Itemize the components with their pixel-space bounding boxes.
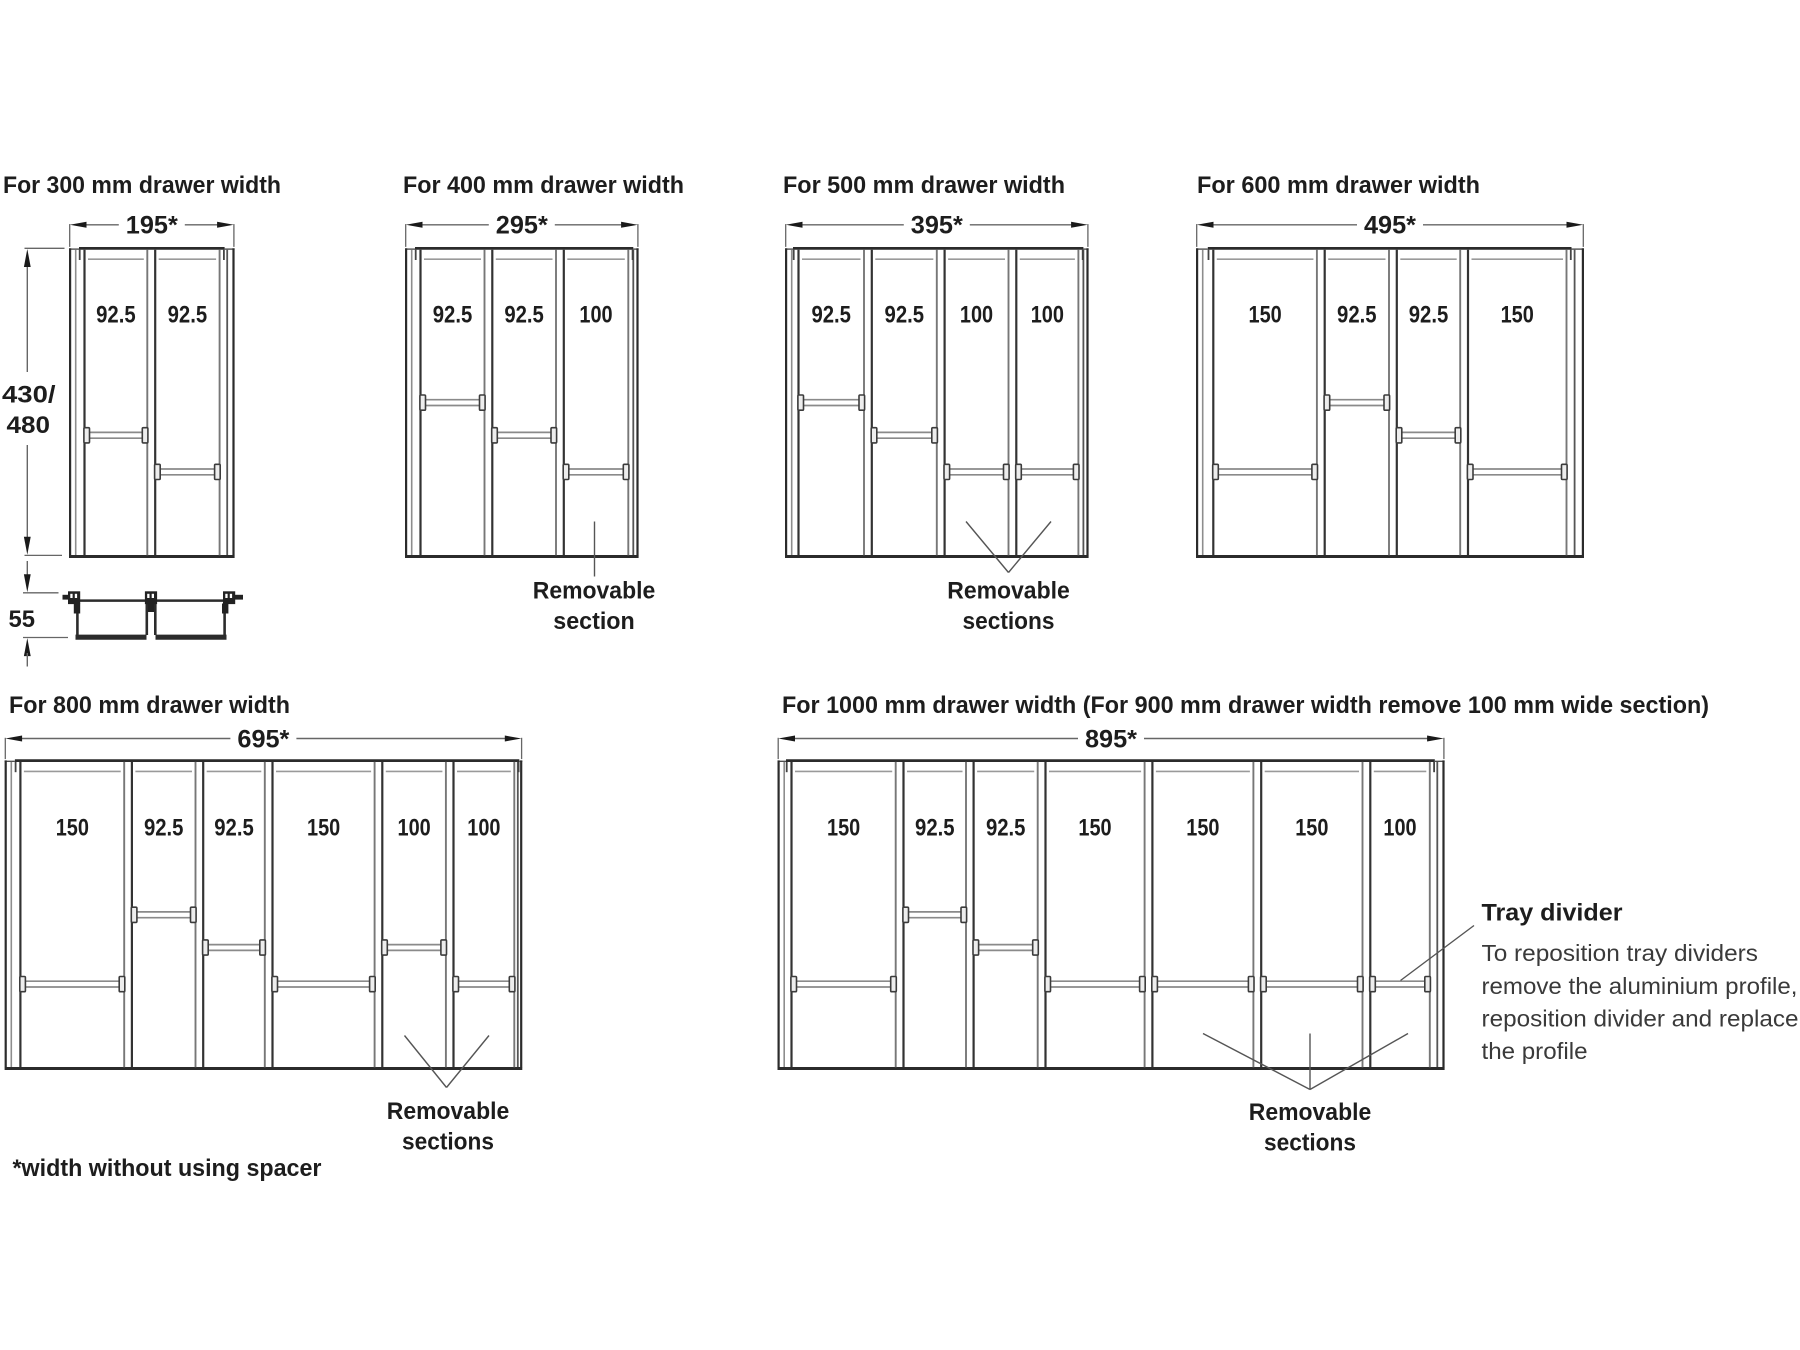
svg-text:92.5: 92.5 (1409, 302, 1449, 329)
svg-text:92.5: 92.5 (1337, 302, 1377, 329)
svg-text:100: 100 (467, 815, 500, 842)
svg-text:150: 150 (827, 815, 860, 842)
svg-text:For 300 mm drawer width: For 300 mm drawer width (3, 172, 281, 199)
svg-text:92.5: 92.5 (885, 302, 925, 329)
svg-text:Removable: Removable (947, 578, 1070, 605)
svg-text:480: 480 (7, 412, 51, 439)
svg-text:100: 100 (960, 302, 993, 329)
svg-text:92.5: 92.5 (504, 302, 544, 329)
svg-text:sections: sections (1264, 1130, 1356, 1157)
svg-text:100: 100 (398, 815, 431, 842)
svg-text:For 400 mm drawer width: For 400 mm drawer width (403, 172, 684, 199)
svg-text:For 600 mm drawer width: For 600 mm drawer width (1197, 172, 1480, 199)
svg-text:Tray divider: Tray divider (1482, 900, 1623, 927)
svg-text:remove the aluminium profile,: remove the aluminium profile, (1482, 973, 1798, 999)
svg-text:92.5: 92.5 (915, 815, 955, 842)
svg-text:92.5: 92.5 (144, 815, 184, 842)
svg-text:For 1000 mm drawer width (For: For 1000 mm drawer width (For 900 mm dra… (782, 692, 1709, 719)
svg-text:reposition divider and replace: reposition divider and replace (1482, 1006, 1799, 1032)
svg-text:To reposition tray dividers: To reposition tray dividers (1482, 940, 1759, 966)
svg-text:Removable: Removable (387, 1098, 510, 1125)
svg-text:150: 150 (1078, 815, 1111, 842)
svg-text:Removable: Removable (533, 578, 656, 605)
svg-text:295*: 295* (496, 212, 548, 240)
svg-text:150: 150 (307, 815, 340, 842)
svg-text:100: 100 (579, 302, 612, 329)
svg-text:150: 150 (1249, 302, 1282, 329)
svg-text:100: 100 (1383, 815, 1416, 842)
svg-text:150: 150 (1501, 302, 1534, 329)
svg-text:100: 100 (1031, 302, 1064, 329)
svg-text:895*: 895* (1085, 725, 1137, 753)
svg-text:the profile: the profile (1482, 1038, 1588, 1064)
svg-text:For 500 mm drawer width: For 500 mm drawer width (783, 172, 1065, 199)
svg-text:92.5: 92.5 (214, 815, 254, 842)
svg-text:695*: 695* (237, 725, 289, 753)
svg-text:395*: 395* (911, 212, 963, 240)
svg-text:Removable: Removable (1249, 1099, 1372, 1126)
svg-text:150: 150 (56, 815, 89, 842)
svg-text:section: section (553, 608, 635, 635)
svg-text:150: 150 (1186, 815, 1219, 842)
svg-text:92.5: 92.5 (811, 302, 851, 329)
svg-text:*width without using spacer: *width without using spacer (13, 1155, 322, 1182)
svg-text:92.5: 92.5 (986, 815, 1026, 842)
svg-text:55: 55 (9, 606, 36, 633)
svg-text:92.5: 92.5 (433, 302, 473, 329)
svg-text:For 800 mm drawer width: For 800 mm drawer width (9, 692, 290, 719)
svg-text:150: 150 (1295, 815, 1328, 842)
svg-text:sections: sections (402, 1129, 494, 1156)
svg-text:495*: 495* (1364, 212, 1416, 240)
svg-text:92.5: 92.5 (96, 302, 136, 329)
svg-text:92.5: 92.5 (168, 302, 208, 329)
svg-text:sections: sections (963, 608, 1055, 635)
svg-text:430/: 430/ (2, 381, 56, 408)
svg-text:195*: 195* (126, 212, 178, 240)
